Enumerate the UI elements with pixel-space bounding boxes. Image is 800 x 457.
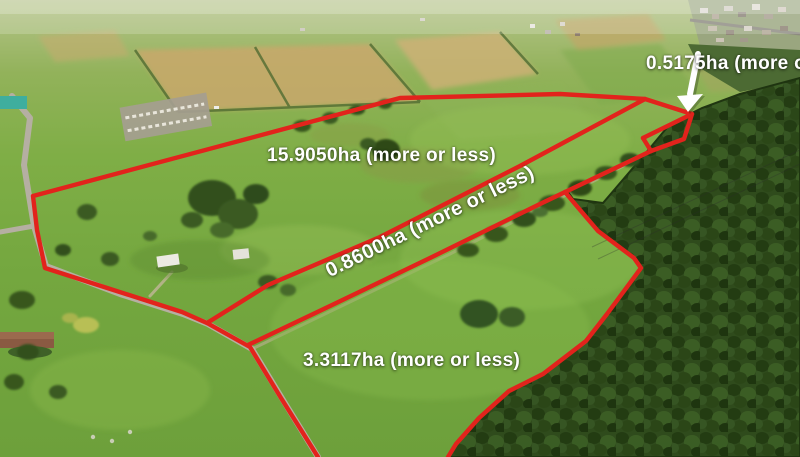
parcel-15-9050ha-label: 15.9050ha (more or less) [267, 146, 496, 167]
parcel-3-3117ha-label: 3.3117ha (more or less) [303, 351, 520, 372]
aerial-photo: 15.9050ha (more or less) 0.8600ha (more … [0, 0, 800, 457]
parcel-0-5175ha-label: 0.5175ha (more or less) [646, 54, 800, 75]
horizon-haze-2 [0, 0, 800, 14]
